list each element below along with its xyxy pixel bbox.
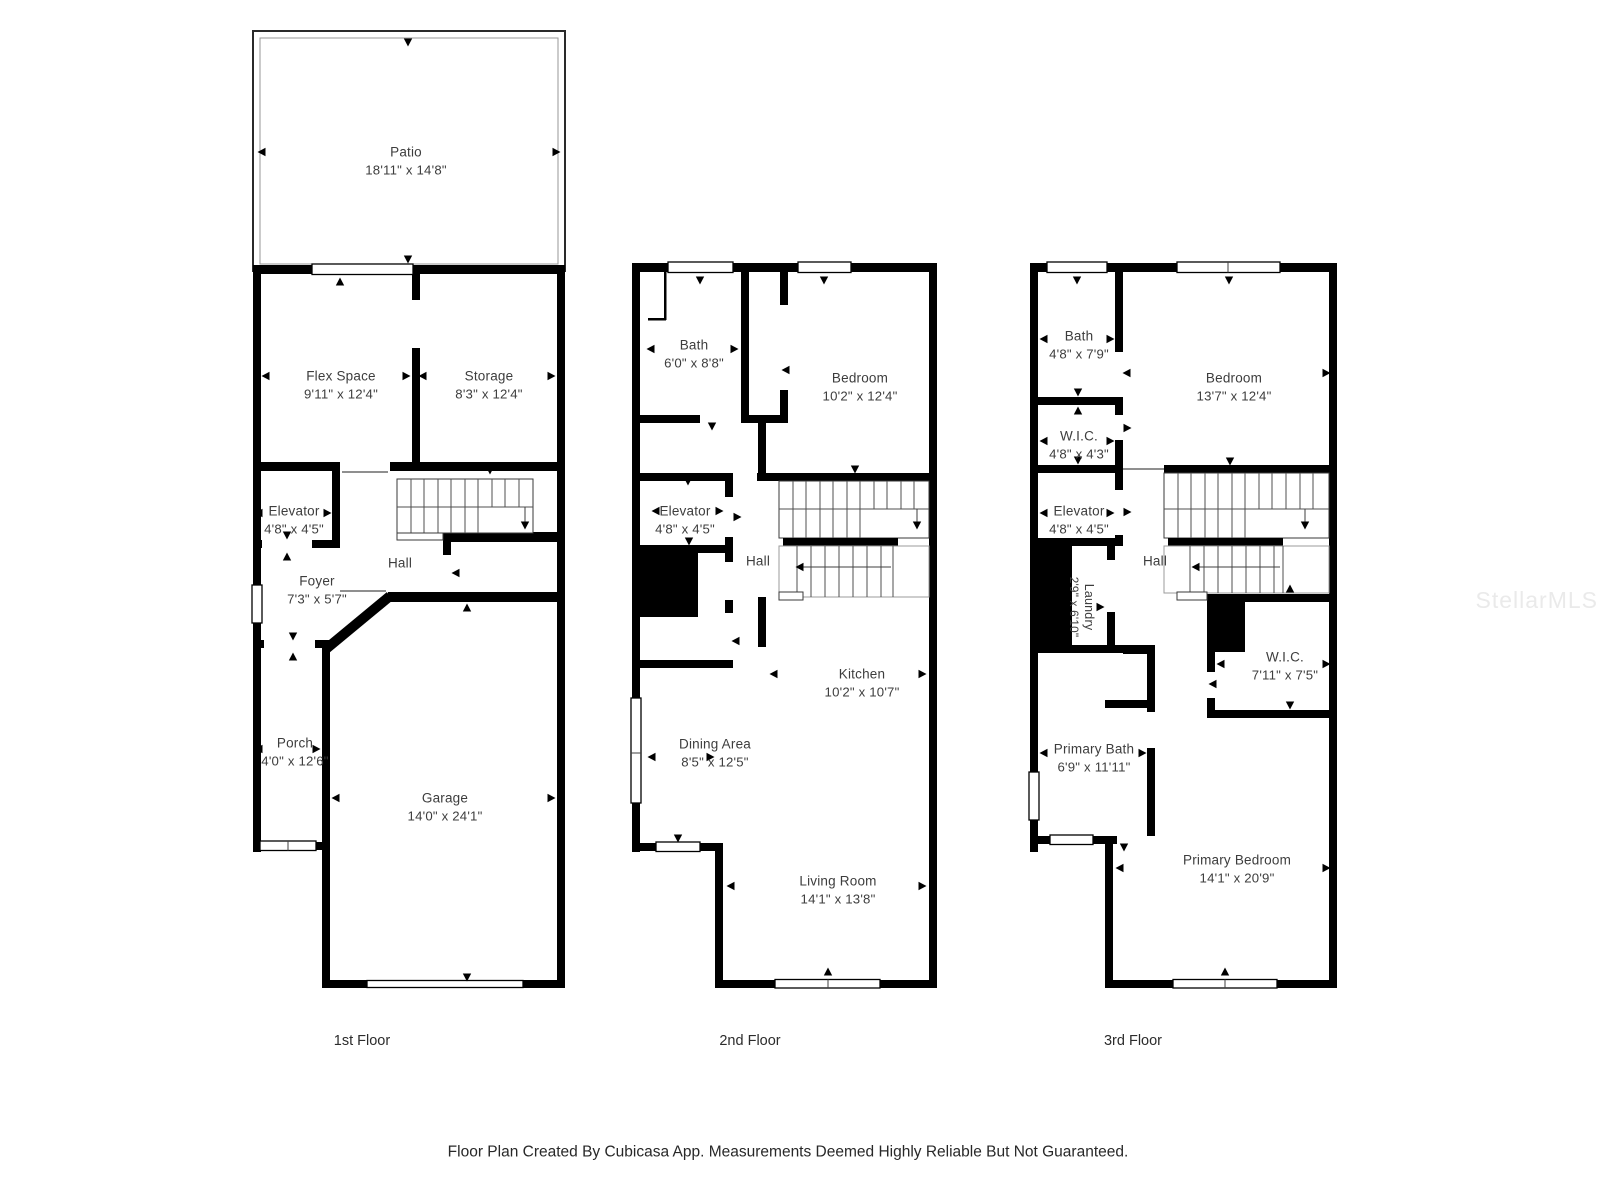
room-label-hall-1: Hall: [388, 556, 412, 571]
floor-plan-3rd: Bath 4'8" x 7'9" Bedroom 13'7" x 12'4" W…: [1029, 262, 1337, 988]
caption: Floor Plan Created By Cubicasa App. Meas…: [448, 1144, 1129, 1161]
stairs-icon: [397, 479, 533, 540]
room-label-hall-3: Hall: [1143, 554, 1167, 569]
room-dims-foyer: 7'3" x 5'7": [287, 592, 347, 607]
room-label-laundry: Laundry: [1082, 584, 1096, 631]
room-label-kitchen: Kitchen: [839, 667, 885, 682]
room-label-bath-3: Bath: [1065, 329, 1094, 344]
room-label-storage: Storage: [465, 369, 514, 384]
stairs-icon: [779, 481, 929, 600]
room-label-wic-small: W.I.C.: [1060, 429, 1098, 444]
room-label-patio: Patio: [390, 145, 422, 160]
room-label-elevator-1: Elevator: [268, 504, 319, 519]
room-dims-elevator-1: 4'8" x 4'5": [264, 522, 324, 537]
room-dims-wic-large: 7'11" x 7'5": [1252, 668, 1319, 683]
garage-door: [367, 981, 523, 988]
room-label-porch: Porch: [277, 736, 313, 751]
room-dims-primary-bedroom: 14'1" x 20'9": [1200, 871, 1275, 886]
stairs-icon: [1164, 473, 1329, 600]
room-label-primary-bedroom: Primary Bedroom: [1183, 853, 1291, 868]
room-dims-laundry: 2'9" x 6'10": [1067, 577, 1081, 638]
room-dims-flex-space: 9'11" x 12'4": [304, 387, 378, 402]
room-dims-patio: 18'11" x 14'8": [365, 163, 447, 178]
floor-label-1st: 1st Floor: [334, 1033, 391, 1049]
walls-group: [632, 263, 937, 988]
walls-group: [253, 265, 565, 988]
floor-plan-2nd: Bath 6'0" x 8'8" Bedroom 10'2" x 12'4" E…: [631, 262, 937, 988]
room-dims-elevator-2: 4'8" x 4'5": [655, 522, 715, 537]
room-label-elevator-3: Elevator: [1053, 504, 1104, 519]
room-label-bedroom-3: Bedroom: [1206, 371, 1262, 386]
room-dims-elevator-3: 4'8" x 4'5": [1049, 522, 1109, 537]
watermark: StellarMLS: [1476, 587, 1598, 613]
room-dims-living-room: 14'1" x 13'8": [801, 892, 876, 907]
room-label-elevator-2: Elevator: [659, 504, 710, 519]
room-label-bath-2: Bath: [680, 338, 709, 353]
room-dims-wic-small: 4'8" x 4'3": [1049, 447, 1109, 462]
room-label-flex-space: Flex Space: [306, 369, 376, 384]
room-dims-primary-bath: 6'9" x 11'11": [1058, 760, 1131, 775]
room-label-hall-2: Hall: [746, 554, 770, 569]
room-dims-bedroom-2: 10'2" x 12'4": [823, 389, 898, 404]
floorplan-document: Patio 18'11" x 14'8" Flex Space 9'11" x …: [0, 0, 1600, 1200]
room-dims-garage: 14'0" x 24'1": [408, 809, 483, 824]
room-dims-kitchen: 10'2" x 10'7": [825, 685, 900, 700]
room-label-garage: Garage: [422, 791, 468, 806]
room-dims-bedroom-3: 13'7" x 12'4": [1197, 389, 1272, 404]
room-label-bedroom-2: Bedroom: [832, 371, 888, 386]
room-dims-bath-2: 6'0" x 8'8": [664, 356, 724, 371]
room-dims-bath-3: 4'8" x 7'9": [1049, 347, 1109, 362]
room-dims-porch: 4'0" x 12'6": [261, 754, 329, 769]
room-label-primary-bath: Primary Bath: [1054, 742, 1134, 757]
room-label-living-room: Living Room: [799, 874, 876, 889]
floor-label-2nd: 2nd Floor: [719, 1033, 780, 1049]
floorplan-canvas: Patio 18'11" x 14'8" Flex Space 9'11" x …: [0, 0, 1600, 1200]
room-label-wic-large: W.I.C.: [1266, 650, 1304, 665]
room-label-dining-area: Dining Area: [679, 737, 751, 752]
floor-label-3rd: 3rd Floor: [1104, 1033, 1162, 1049]
room-dims-storage: 8'3" x 12'4": [455, 387, 523, 402]
floor-plan-1st: Patio 18'11" x 14'8" Flex Space 9'11" x …: [252, 31, 565, 988]
room-dims-dining-area: 8'5" x 12'5": [681, 755, 749, 770]
room-label-foyer: Foyer: [299, 574, 335, 589]
